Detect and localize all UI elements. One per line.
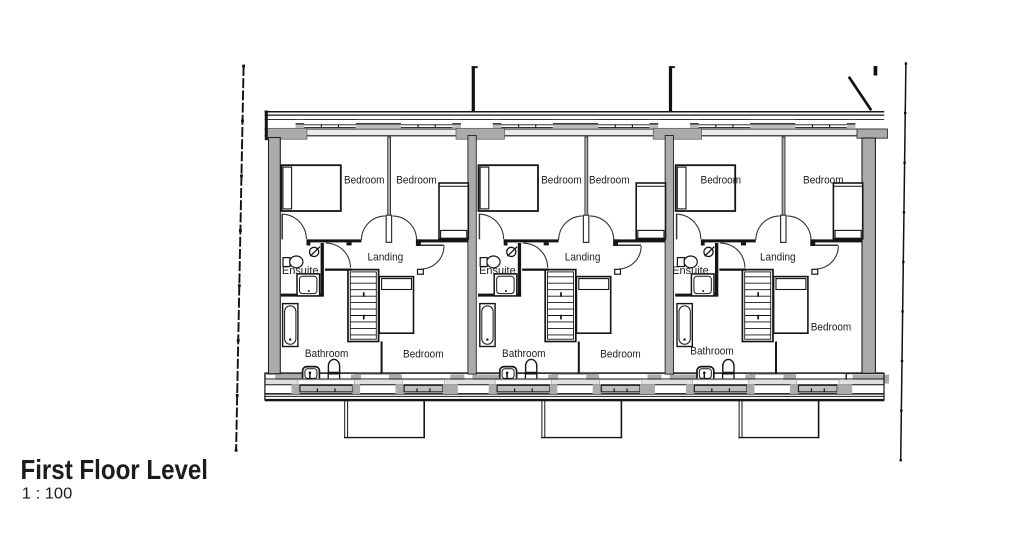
svg-text:Bedroom: Bedroom — [403, 349, 444, 361]
svg-text:Bedroom: Bedroom — [344, 175, 385, 187]
svg-text:Landing: Landing — [565, 251, 601, 263]
svg-text:Bedroom: Bedroom — [600, 349, 641, 361]
svg-text:Bathroom: Bathroom — [502, 348, 546, 360]
svg-text:Bedroom: Bedroom — [541, 175, 582, 187]
svg-text:Ensuite: Ensuite — [672, 265, 709, 277]
svg-text:Bedroom: Bedroom — [803, 175, 844, 187]
svg-text:Landing: Landing — [368, 251, 404, 263]
svg-text:Bedroom: Bedroom — [701, 175, 742, 187]
svg-text:Bedroom: Bedroom — [811, 321, 852, 333]
svg-text:Bedroom: Bedroom — [589, 175, 630, 187]
svg-text:Landing: Landing — [760, 251, 796, 263]
svg-text:Bathroom: Bathroom — [690, 346, 734, 358]
svg-text:Bedroom: Bedroom — [396, 175, 437, 187]
svg-text:First Floor Level: First Floor Level — [21, 454, 209, 485]
svg-text:1 : 100: 1 : 100 — [22, 486, 73, 503]
svg-text:Bathroom: Bathroom — [305, 348, 349, 360]
svg-text:Ensuite: Ensuite — [282, 265, 319, 277]
svg-text:Ensuite: Ensuite — [479, 265, 516, 277]
